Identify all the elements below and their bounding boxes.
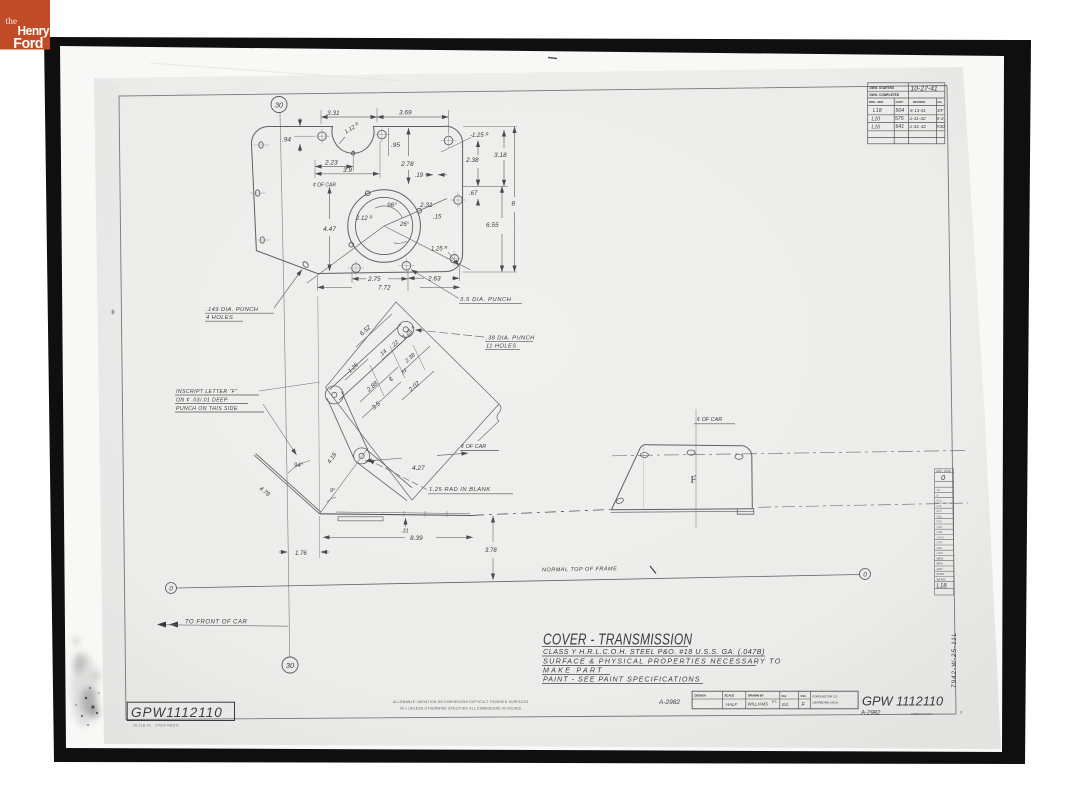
svg-text:DEL: DEL xyxy=(937,515,943,519)
svg-text:1.25 RAD IN BLANK: 1.25 RAD IN BLANK xyxy=(429,487,491,493)
svg-text:575: 575 xyxy=(895,116,904,122)
svg-text:A-2982: A-2982 xyxy=(860,711,881,717)
svg-text:COPY: COPY xyxy=(896,100,904,104)
svg-text:Ford: Ford xyxy=(13,36,43,52)
svg-text:18: 18 xyxy=(937,488,941,492)
svg-text:¢ OF CAR: ¢ OF CAR xyxy=(461,444,486,450)
svg-text:3.78: 3.78 xyxy=(485,548,497,554)
svg-text:DESIGN: DESIGN xyxy=(695,694,706,698)
svg-text:8: 8 xyxy=(512,201,516,208)
svg-text:SURFACE & PHYSICAL PROPERTIES: SURFACE & PHYSICAL PROPERTIES NECESSARY … xyxy=(543,657,782,666)
svg-text:#30: #30 xyxy=(937,124,945,130)
svg-text:E/L: E/L xyxy=(782,702,789,707)
svg-text:L18.: L18. xyxy=(937,583,949,589)
svg-text:IN ± UNLESS OTHERWISE SPECIFIE: IN ± UNLESS OTHERWISE SPECIFIED ALL DIME… xyxy=(400,707,521,711)
svg-text:¢ OF CAR: ¢ OF CAR xyxy=(697,417,722,423)
svg-text:PAINT - SEE PAINT SPECIFICATIO: PAINT - SEE PAINT SPECIFICATIONS xyxy=(543,675,700,684)
svg-text:1.25 ᴿ: 1.25 ᴿ xyxy=(431,246,447,253)
svg-text:1.76: 1.76 xyxy=(295,551,307,557)
svg-text:3.69: 3.69 xyxy=(399,110,412,117)
svg-text:ALLOWABLE VARIATION ON DIMENSI: ALLOWABLE VARIATION ON DIMENSIONS DIFFIC… xyxy=(393,700,529,704)
svg-text:30: 30 xyxy=(286,661,295,670)
svg-text:DWG. STARTED: DWG. STARTED xyxy=(870,86,895,90)
svg-text:GPA: GPA xyxy=(937,541,943,545)
svg-text:MAKE PART: MAKE PART xyxy=(543,666,604,675)
svg-text:WHEE: WHEE xyxy=(937,578,946,582)
svg-text:8.39: 8.39 xyxy=(410,535,423,542)
svg-text:0: 0 xyxy=(863,572,867,579)
svg-text:MADE IN U.S.A.: MADE IN U.S.A. xyxy=(911,712,933,716)
svg-text:.38 DIA. PUNCH: .38 DIA. PUNCH xyxy=(486,336,535,342)
svg-text:4 HOLES: 4 HOLES xyxy=(206,315,233,321)
svg-text:G25: G25 xyxy=(937,525,943,529)
svg-text:HALF: HALF xyxy=(726,702,739,707)
svg-text:FORD MOTOR CO.: FORD MOTOR CO. xyxy=(813,695,839,699)
svg-text:30: 30 xyxy=(275,100,284,109)
svg-text:INSCRIPT LETTER "F": INSCRIPT LETTER "F" xyxy=(176,389,238,395)
svg-text:COVER - TRANSMISSION: COVER - TRANSMISSION xyxy=(543,630,693,648)
svg-text:JAP: JAP xyxy=(937,567,943,571)
svg-text:A-2982: A-2982 xyxy=(658,699,680,706)
svg-text:3.18: 3.18 xyxy=(494,152,507,159)
svg-text:DRAWN BY: DRAWN BY xyxy=(748,694,764,698)
svg-text:TO FRONT OF CAR: TO FRONT OF CAR xyxy=(185,620,247,626)
svg-text:2.31: 2.31 xyxy=(419,202,433,209)
svg-text:.19: .19 xyxy=(415,173,424,179)
svg-text:1-11-42: 1-11-42 xyxy=(910,116,927,122)
svg-text:L26: L26 xyxy=(937,504,942,508)
svg-text:.15: .15 xyxy=(433,215,442,221)
svg-text:.94: .94 xyxy=(282,137,291,144)
svg-text:DEARBORN, MICH.: DEARBORN, MICH. xyxy=(813,701,839,705)
svg-text:G05: G05 xyxy=(937,530,943,534)
svg-text:.95: .95 xyxy=(391,142,400,149)
svg-text:WES: WES xyxy=(937,557,944,561)
svg-text:2.12 ᴿ: 2.12 ᴿ xyxy=(355,215,372,222)
svg-text:GPW 1112110: GPW 1112110 xyxy=(862,694,944,709)
svg-text:0: 0 xyxy=(169,586,173,593)
svg-text:L18: L18 xyxy=(873,108,882,114)
svg-text:6-13-41: 6-13-41 xyxy=(910,108,926,113)
svg-text:4.47: 4.47 xyxy=(323,226,336,233)
svg-text:WILLIAMS: WILLIAMS xyxy=(748,702,769,707)
svg-text:11 HOLES: 11 HOLES xyxy=(486,344,516,350)
svg-text:3.9: 3.9 xyxy=(343,167,352,174)
svg-text:CLASS Y H.R.L.C.O.H. STEEL P&: CLASS Y H.R.L.C.O.H. STEEL P&O. #18 U.S.… xyxy=(543,647,765,656)
svg-text:96°: 96° xyxy=(387,201,397,209)
svg-text:2.38: 2.38 xyxy=(465,157,479,164)
svg-text:2.78: 2.78 xyxy=(400,161,414,168)
svg-text:DWG. COMPLETED: DWG. COMPLETED xyxy=(870,93,900,97)
svg-text:2.63: 2.63 xyxy=(427,275,441,282)
svg-text:the: the xyxy=(6,17,18,27)
svg-text:.31: .31 xyxy=(401,529,409,535)
svg-text:F55: F55 xyxy=(937,520,943,524)
svg-text:641: 641 xyxy=(896,124,905,130)
svg-text:3.31: 3.31 xyxy=(327,110,340,117)
svg-text:SCALE: SCALE xyxy=(725,694,735,698)
svg-text:1-31-42: 1-31-42 xyxy=(910,124,927,130)
svg-text:CH.: CH. xyxy=(937,100,942,104)
svg-text:JEE: JEE xyxy=(937,546,943,550)
svg-text:E.L: E.L xyxy=(772,700,777,704)
svg-text:7.72: 7.72 xyxy=(378,285,391,292)
svg-text:94°: 94° xyxy=(294,463,304,469)
svg-text:GPW: GPW xyxy=(937,536,944,540)
svg-text:7942-W-25-11L: 7942-W-25-11L xyxy=(951,632,958,688)
svg-text:-1.25 ᴿ: -1.25 ᴿ xyxy=(470,132,488,139)
svg-text:500: 500 xyxy=(937,509,942,513)
svg-text:4.27: 4.27 xyxy=(412,465,425,472)
svg-text:2.75: 2.75 xyxy=(367,276,381,283)
svg-text:610: 610 xyxy=(937,499,942,503)
svg-text:BRA: BRA xyxy=(937,562,944,566)
svg-text:O.K.: O.K. xyxy=(801,694,807,698)
svg-text:5·2: 5·2 xyxy=(937,116,944,122)
svg-text:26°: 26° xyxy=(399,222,410,228)
svg-text:PUNCH ON THIS SIDE: PUNCH ON THIS SIDE xyxy=(176,406,238,412)
svg-text:GPW1112110: GPW1112110 xyxy=(131,705,223,720)
svg-text:16-JLB-41 27000 REQ'D: 16-JLB-41 27000 REQ'D xyxy=(133,724,179,728)
svg-text:504: 504 xyxy=(896,108,905,114)
svg-text:.67: .67 xyxy=(469,191,478,197)
svg-text:B: B xyxy=(937,493,939,497)
svg-text:.149 DIA. PUNCH: .149 DIA. PUNCH xyxy=(206,307,259,313)
svg-text:6.55: 6.55 xyxy=(486,222,499,229)
svg-text:¢ OF CAR: ¢ OF CAR xyxy=(313,183,336,189)
svg-text:3.5 DIA. PUNCH: 3.5 DIA. PUNCH xyxy=(460,297,512,303)
svg-text:REVISED: REVISED xyxy=(913,100,925,104)
svg-text:ON ¢ .03/.01 DEEP: ON ¢ .03/.01 DEEP xyxy=(176,398,228,404)
svg-text:2.23: 2.23 xyxy=(324,160,338,167)
svg-text:RUST: RUST xyxy=(937,572,945,576)
svg-text:L10: L10 xyxy=(872,117,881,123)
svg-text:CH.: CH. xyxy=(782,694,787,698)
svg-text:10-27-41: 10-27-41 xyxy=(911,86,938,93)
svg-text:GEN: GEN xyxy=(937,551,944,555)
svg-text:L16: L16 xyxy=(872,125,881,131)
svg-text:DRG. UNIT: DRG. UNIT xyxy=(869,100,884,104)
